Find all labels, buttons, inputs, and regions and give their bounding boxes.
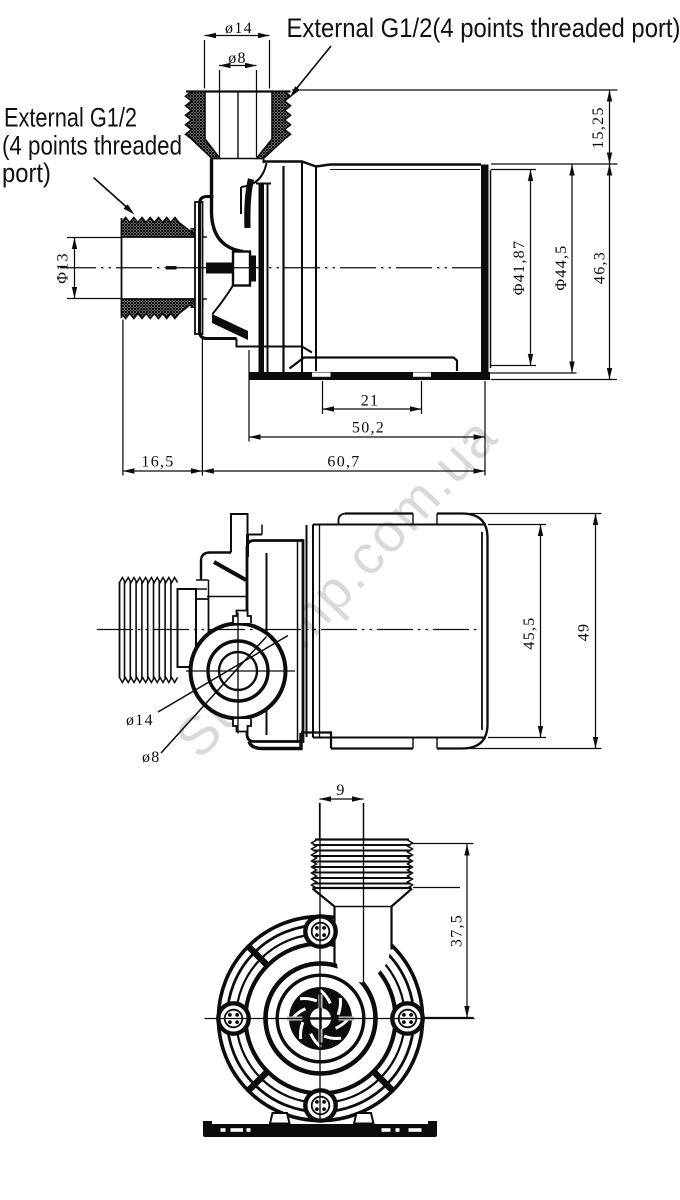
svg-text:50,2: 50,2 [352,420,385,437]
svg-text:ø14: ø14 [126,712,154,729]
svg-text:Φ41,87: Φ41,87 [511,240,528,296]
svg-text:16,5: 16,5 [141,454,174,471]
svg-text:External G1/2(4 points threade: External G1/2(4 points threaded port) [287,13,680,43]
svg-text:Φ44,5: Φ44,5 [553,244,570,290]
svg-text:49: 49 [576,623,593,642]
svg-text:port): port) [2,158,51,188]
svg-text:45,5: 45,5 [521,616,538,649]
svg-text:15,25: 15,25 [590,106,607,149]
svg-text:37,5: 37,5 [449,914,466,947]
svg-text:9: 9 [336,782,345,799]
svg-text:ø8: ø8 [142,749,161,766]
svg-text:ø8: ø8 [228,50,247,67]
svg-text:60,7: 60,7 [327,454,360,471]
svg-text:External G1/2: External G1/2 [4,103,137,133]
svg-text:ø14: ø14 [225,20,253,37]
svg-text:46,3: 46,3 [592,251,609,284]
svg-text:21: 21 [361,393,380,410]
svg-text:(4 points threaded: (4 points threaded [2,131,182,161]
